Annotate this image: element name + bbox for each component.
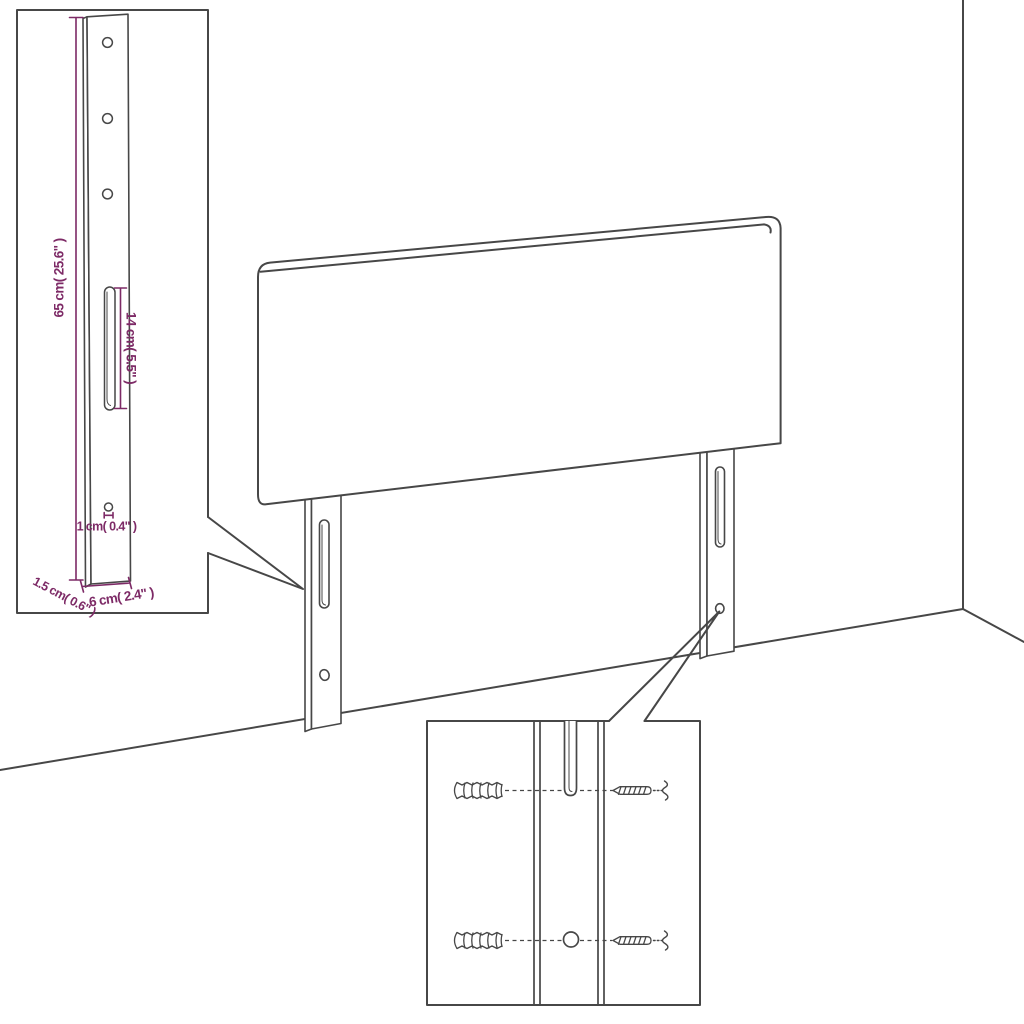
screw-top xyxy=(613,781,668,800)
dimension-label-leg-width: 6 cm( 2.4" ) xyxy=(88,585,155,610)
headboard-right-leg xyxy=(700,449,734,659)
dimension-label-slot-length: 14 cm( 5.5" ) xyxy=(123,312,138,384)
inset-leg-front-face xyxy=(87,14,131,584)
screw-bottom xyxy=(613,931,668,950)
wall-plug-bottom xyxy=(455,933,503,949)
left-leg-side-face xyxy=(305,499,312,732)
wall-plug-top xyxy=(455,783,503,799)
floor-line-right xyxy=(963,609,1024,642)
leg-inset-callout-wedge xyxy=(208,517,303,589)
inset-strip-slot xyxy=(565,721,577,796)
hardware-inset-border xyxy=(427,721,700,1005)
headboard-dimension-diagram: 65 cm( 25.6" ) 14 cm( 5.5" ) 1 cm( 0.4" … xyxy=(0,0,1024,1024)
inset-strip-hole xyxy=(564,932,579,947)
dimension-line-leg-height xyxy=(70,18,84,581)
headboard-left-leg xyxy=(305,495,341,731)
floor-line-left xyxy=(0,609,963,770)
dimension-label-leg-height: 65 cm( 25.6" ) xyxy=(52,238,67,317)
diagram-canvas: 65 cm( 25.6" ) 14 cm( 5.5" ) 1 cm( 0.4" … xyxy=(0,0,1024,1024)
hardware-detail-inset xyxy=(427,612,719,1006)
dimension-label-hole-diameter: 1 cm( 0.4" ) xyxy=(77,519,137,533)
left-leg-front-face xyxy=(312,495,342,729)
